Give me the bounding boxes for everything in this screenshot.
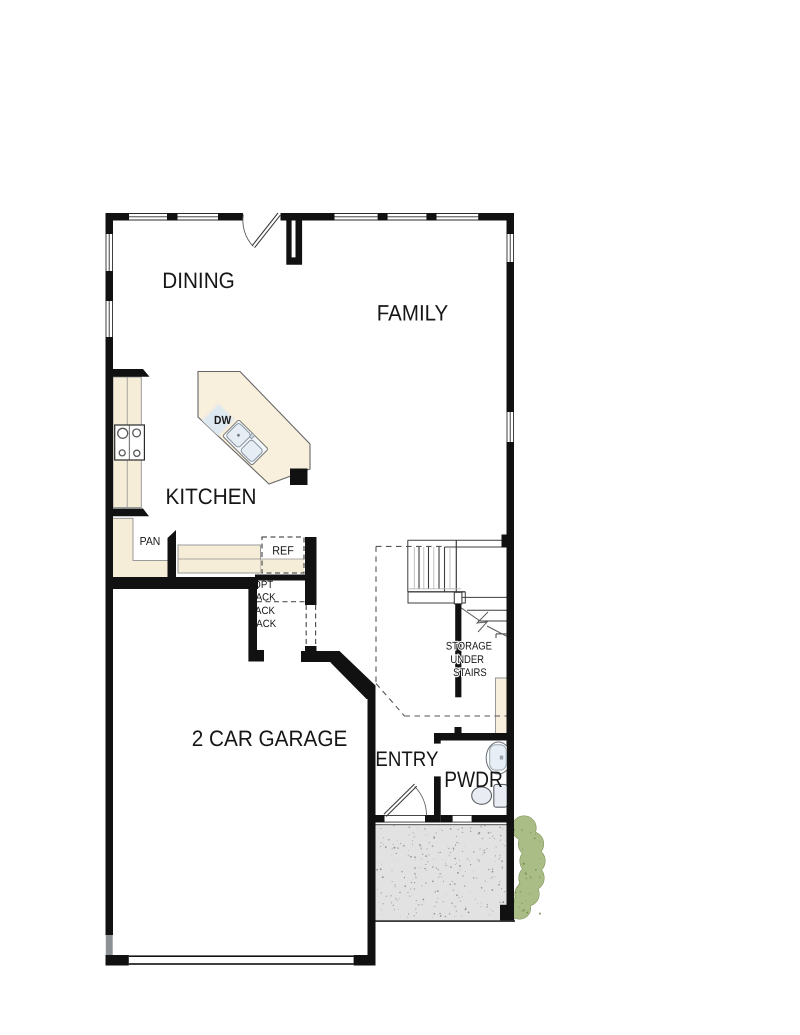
svg-text:DW: DW: [214, 413, 232, 427]
svg-text:KITCHEN: KITCHEN: [165, 484, 256, 509]
svg-text:REF: REF: [272, 544, 294, 558]
svg-text:UNDER: UNDER: [450, 654, 484, 666]
svg-text:2 CAR GARAGE: 2 CAR GARAGE: [192, 726, 348, 751]
svg-text:FAMILY: FAMILY: [377, 301, 449, 326]
svg-text:STAIRS: STAIRS: [453, 667, 486, 679]
svg-text:ENTRY: ENTRY: [375, 748, 438, 771]
svg-text:DINING: DINING: [162, 268, 235, 293]
svg-text:PWDR: PWDR: [444, 767, 503, 792]
svg-text:PAN: PAN: [140, 535, 161, 548]
svg-text:STORAGE: STORAGE: [446, 641, 492, 653]
